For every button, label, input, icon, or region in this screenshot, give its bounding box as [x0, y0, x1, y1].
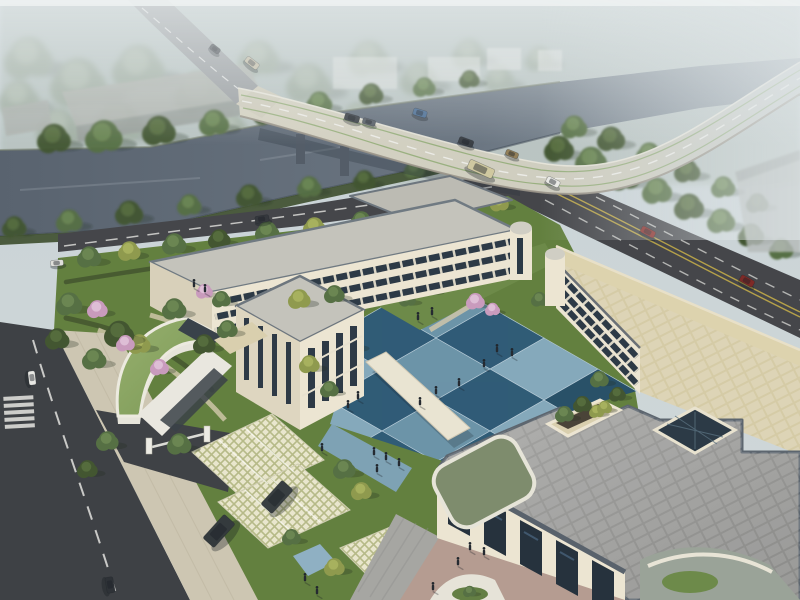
aerial-rendering — [0, 0, 800, 600]
right-mist-overlay — [540, 0, 800, 240]
bridge-pier — [340, 146, 349, 176]
tower-window — [517, 238, 523, 274]
gate-pillar — [204, 426, 210, 442]
top-edge-highlight — [0, 0, 800, 6]
rendering-canvas — [0, 0, 800, 600]
building-b-corner-tower — [545, 248, 565, 306]
building-a-corner-tower — [510, 222, 532, 281]
gate-pillar — [146, 438, 152, 454]
